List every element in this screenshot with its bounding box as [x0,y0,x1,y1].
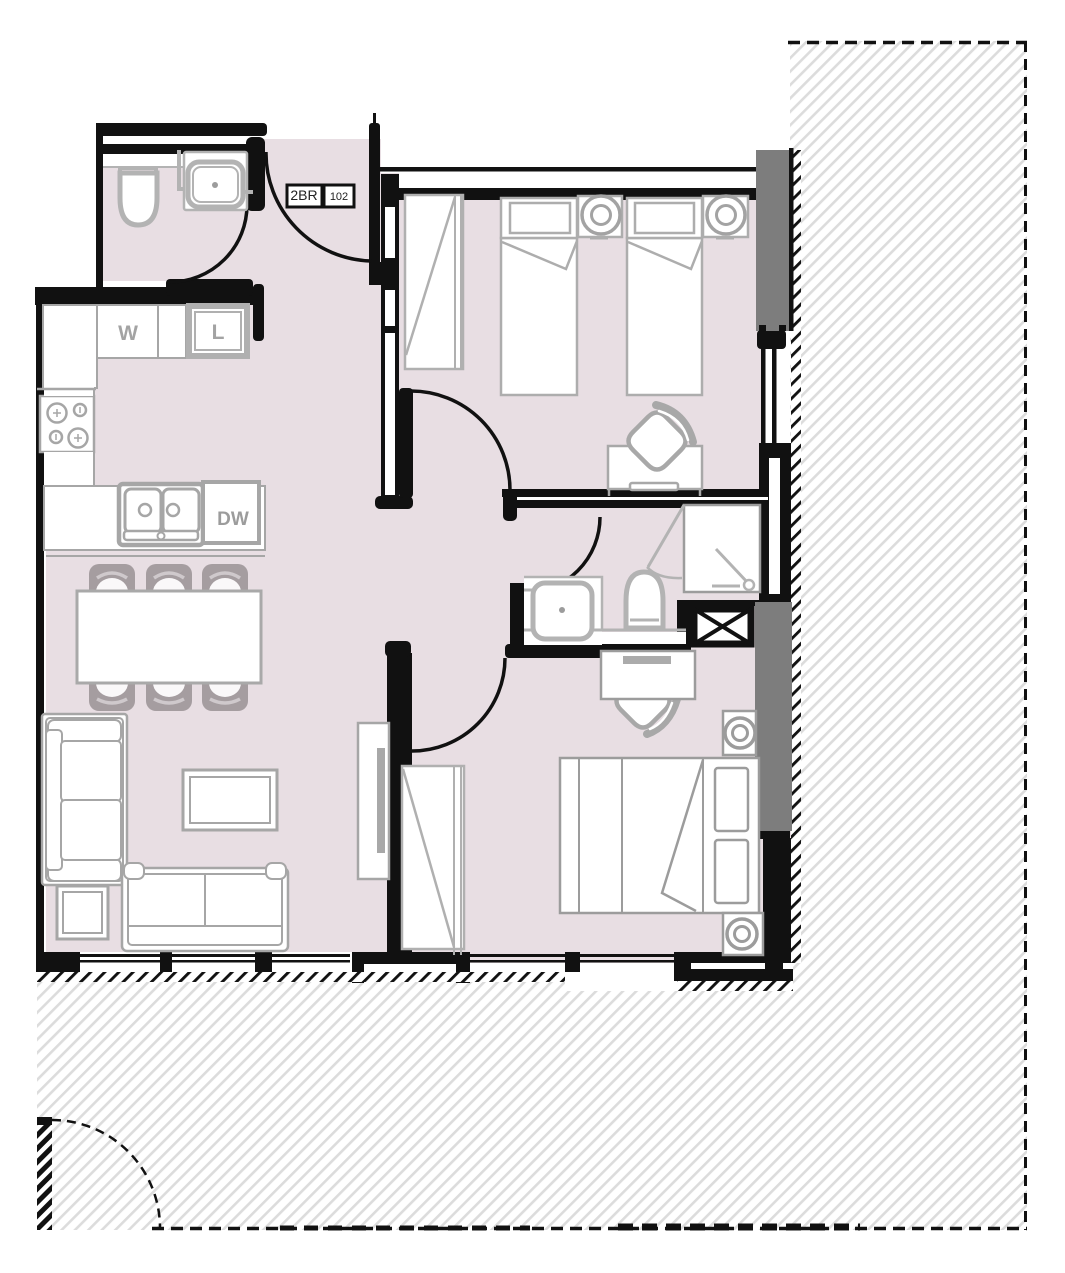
svg-text:L: L [212,321,225,344]
svg-text:DW: DW [217,509,249,530]
svg-text:102: 102 [330,191,348,203]
svg-text:2BR: 2BR [290,187,317,203]
svg-text:W: W [118,322,138,345]
